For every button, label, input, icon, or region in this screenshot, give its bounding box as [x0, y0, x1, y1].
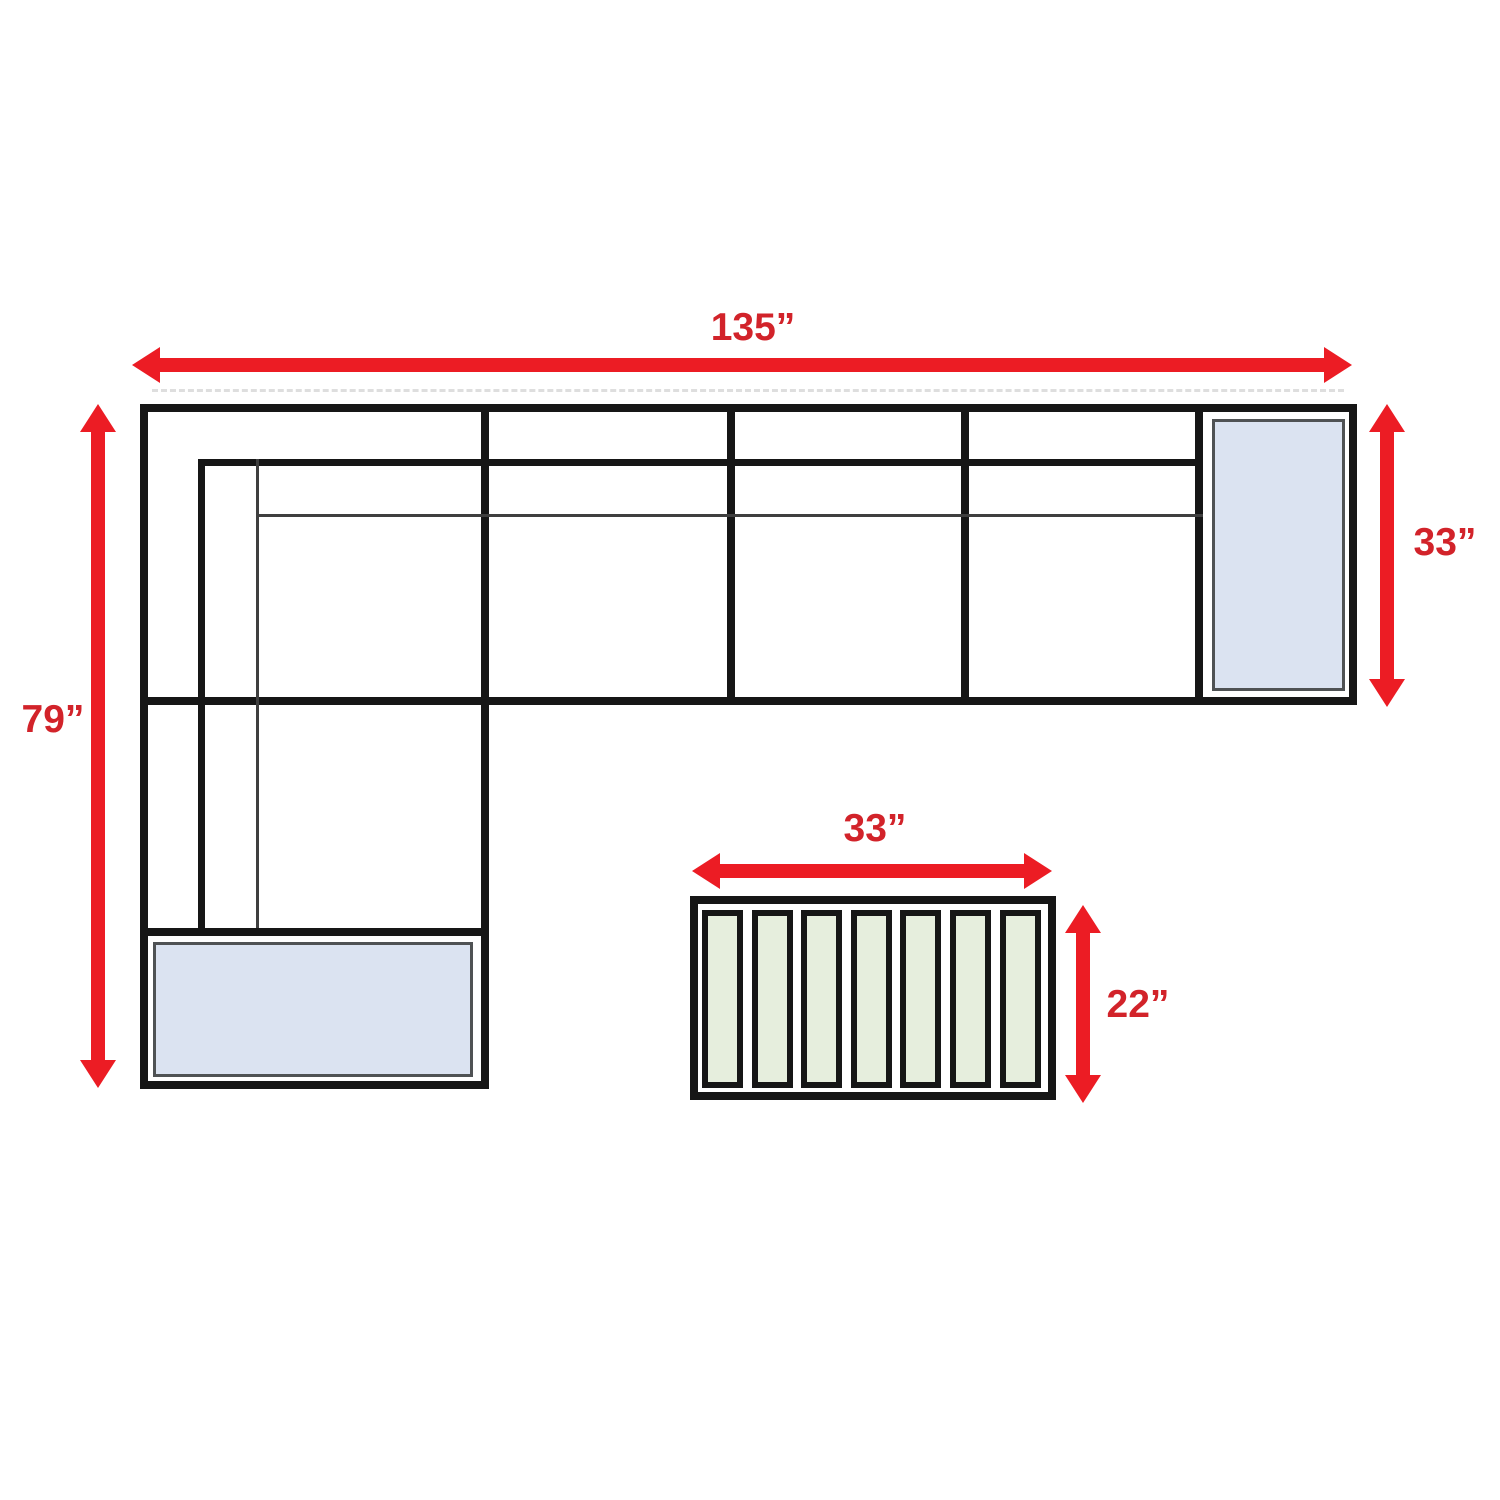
sofa-bottom-border — [140, 1081, 489, 1089]
arrow-head-left-icon — [132, 347, 160, 383]
arrow-head-down-icon — [1369, 679, 1405, 707]
ottoman-section-line — [140, 928, 489, 936]
table-slat — [801, 910, 842, 1088]
table-slat — [702, 910, 743, 1088]
ottoman-cushion — [153, 942, 473, 1077]
sofa-depth-label: 79” — [0, 698, 106, 742]
table-width-label: 33” — [775, 807, 975, 851]
table-slat — [950, 910, 991, 1088]
seat-divider-4 — [1195, 404, 1203, 705]
seat-divider-2 — [727, 404, 735, 705]
inner-backrest-line-horizontal — [198, 459, 1203, 466]
coffee-table — [690, 896, 1056, 1100]
table-slats — [698, 904, 1048, 1092]
seat-divider-3 — [961, 404, 969, 705]
dashed-guide-line — [152, 389, 1344, 392]
cushion-edge-line-vertical — [256, 459, 259, 928]
arrow-body — [91, 430, 105, 1062]
table-width-arrow — [692, 853, 1052, 889]
sofa-top-border — [140, 404, 1357, 412]
arrow-head-down-icon — [1065, 1075, 1101, 1103]
end-section-cushion — [1212, 419, 1345, 691]
seat-divider-1-and-arm-edge — [481, 404, 489, 1089]
arrow-head-up-icon — [1369, 404, 1405, 432]
arrow-head-up-icon — [80, 404, 116, 432]
table-slat — [1000, 910, 1041, 1088]
cushion-edge-line-horizontal — [256, 514, 1203, 517]
arrow-body — [718, 864, 1026, 878]
sofa-left-border — [140, 404, 148, 1089]
table-slat — [752, 910, 793, 1088]
end-section-depth-label: 33” — [1365, 521, 1500, 565]
table-depth-label: 22” — [1038, 983, 1238, 1027]
arrow-head-right-icon — [1324, 347, 1352, 383]
table-slat — [900, 910, 941, 1088]
sofa-right-border — [1349, 404, 1357, 705]
arrow-head-left-icon — [692, 853, 720, 889]
table-slat — [851, 910, 892, 1088]
inner-armrest-line-vertical — [198, 459, 205, 928]
arrow-head-right-icon — [1024, 853, 1052, 889]
arrow-head-up-icon — [1065, 905, 1101, 933]
sofa-seat-front-line — [140, 697, 1357, 705]
sofa-dimension-diagram: 135” 79” 33” 33” 22” — [0, 0, 1500, 1500]
arrow-head-down-icon — [80, 1060, 116, 1088]
sofa-width-arrow — [132, 347, 1352, 383]
sofa-depth-arrow — [80, 404, 116, 1088]
sofa-width-label: 135” — [653, 306, 853, 350]
arrow-body — [158, 358, 1326, 372]
